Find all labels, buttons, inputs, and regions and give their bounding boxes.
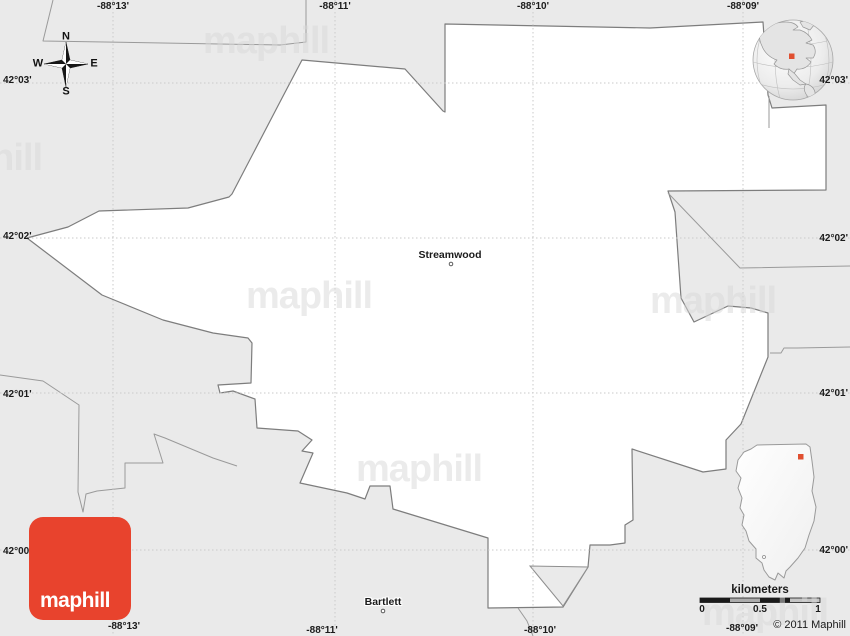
lon-label-bottom-1: -88°13' <box>108 622 140 632</box>
maphill-logo-text: maphill <box>40 590 110 611</box>
inset-location-marker <box>798 454 804 460</box>
lat-label-right-1: 42°03' <box>819 76 848 86</box>
globe-location-marker <box>789 54 795 60</box>
lon-label-top-2: -88°11' <box>319 2 350 12</box>
bartlett-marker-icon <box>381 609 385 613</box>
lat-label-left-4: 42°00' <box>3 547 32 557</box>
lat-label-left-3: 42°01' <box>3 390 32 400</box>
maphill-logo[interactable]: maphill <box>29 517 131 620</box>
lat-label-right-4: 42°00' <box>819 546 848 556</box>
lon-label-bottom-3: -88°10' <box>524 626 556 636</box>
compass-south-label: S <box>62 87 69 98</box>
compass-north-label: N <box>62 32 70 43</box>
lat-label-left-2: 42°02' <box>3 232 32 242</box>
compass-east-label: E <box>90 59 97 70</box>
scale-tick-1: 1 <box>815 605 821 615</box>
lon-label-top-3: -88°10' <box>517 2 549 12</box>
scale-tick-0: 0 <box>699 605 705 615</box>
lon-label-bottom-4: -88°09' <box>726 624 758 634</box>
lat-label-left-1: 42°03' <box>3 76 32 86</box>
lat-label-right-3: 42°01' <box>819 389 848 399</box>
place-label-streamwood: Streamwood <box>418 249 481 261</box>
compass-rose-icon <box>44 42 88 87</box>
lon-label-bottom-2: -88°11' <box>306 626 337 636</box>
lat-label-right-2: 42°02' <box>819 234 848 244</box>
lon-label-top-4: -88°09' <box>727 2 759 12</box>
copyright-text: © 2011 Maphill <box>773 619 846 631</box>
map-page: maphill maphill maphill maphill maphill … <box>0 0 850 636</box>
globe-locator-icon <box>753 20 833 100</box>
lon-label-top-1: -88°13' <box>97 2 129 12</box>
illinois-inset-map <box>736 444 816 580</box>
place-label-bartlett: Bartlett <box>365 596 402 608</box>
streamwood-area-shape <box>27 22 826 608</box>
compass-west-label: W <box>33 59 43 70</box>
scale-bar-title: kilometers <box>731 584 789 596</box>
streamwood-marker-icon <box>449 262 453 266</box>
scale-tick-05: 0.5 <box>753 605 767 615</box>
scale-bar <box>700 598 820 603</box>
